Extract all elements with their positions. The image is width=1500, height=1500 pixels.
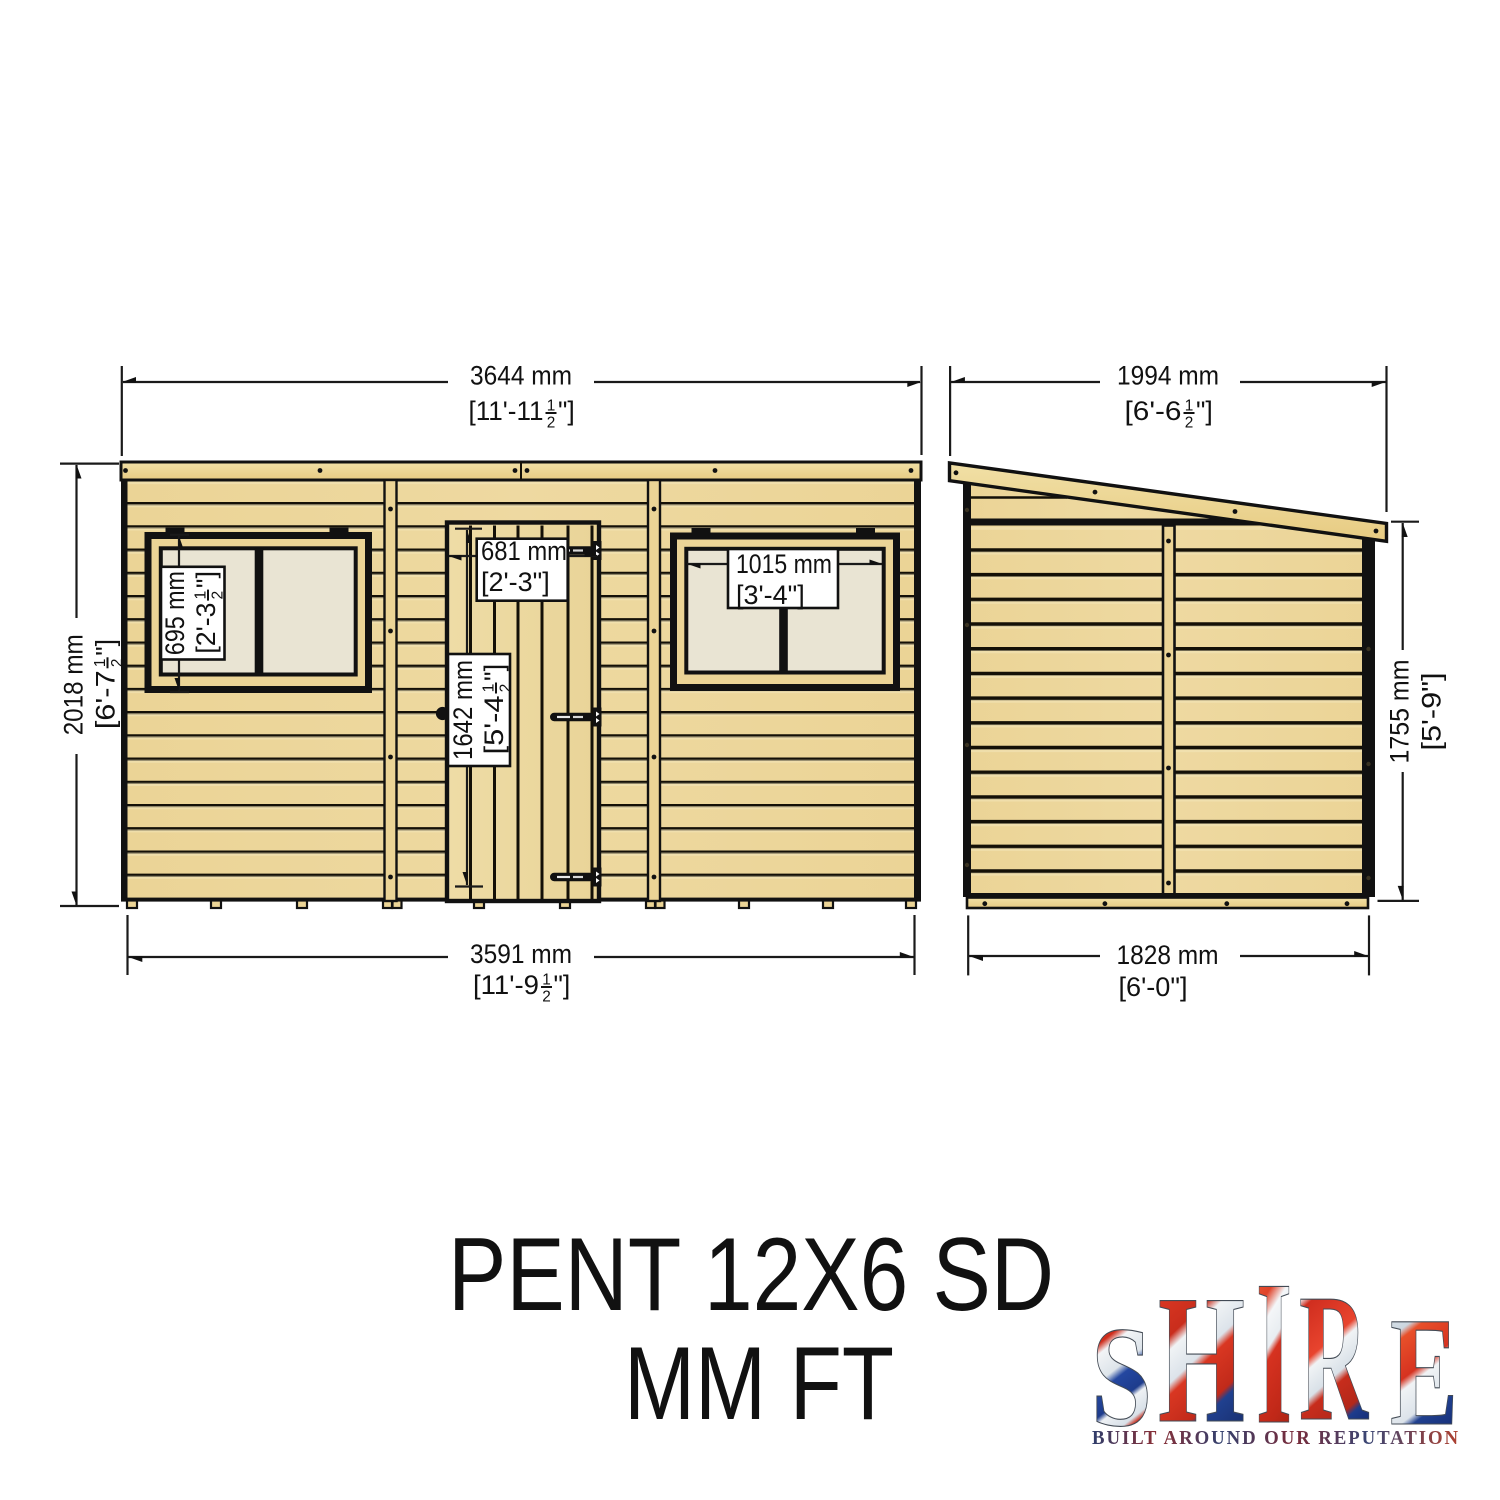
svg-text:[3'-4"]: [3'-4"]: [736, 580, 805, 610]
svg-text:1755 mm: 1755 mm: [1385, 660, 1415, 764]
svg-text:"]: "]: [1196, 396, 1213, 426]
svg-text:[5'-9"]: [5'-9"]: [1417, 673, 1447, 751]
svg-text:"]: "]: [479, 664, 509, 681]
svg-text:[5'-4: [5'-4: [479, 696, 509, 755]
svg-text:1: 1: [92, 659, 109, 668]
svg-text:2: 2: [109, 659, 126, 668]
svg-text:1: 1: [547, 398, 556, 415]
svg-text:MM FT: MM FT: [624, 1326, 894, 1442]
svg-text:"]: "]: [91, 639, 121, 656]
svg-text:2: 2: [542, 989, 551, 1006]
svg-text:[2'-3"]: [2'-3"]: [481, 567, 550, 597]
svg-text:695 mm: 695 mm: [160, 571, 190, 655]
svg-text:PENT 12X6 SD: PENT 12X6 SD: [448, 1217, 1054, 1333]
svg-text:1: 1: [1185, 398, 1194, 415]
svg-text:"]: "]: [554, 970, 571, 1000]
svg-text:"]: "]: [191, 571, 221, 588]
svg-text:1642 mm: 1642 mm: [448, 660, 478, 760]
svg-text:3591 mm: 3591 mm: [470, 939, 572, 969]
svg-text:1: 1: [542, 972, 551, 989]
svg-text:1015 mm: 1015 mm: [736, 549, 832, 579]
svg-text:2: 2: [547, 415, 556, 432]
svg-text:3644 mm: 3644 mm: [470, 361, 572, 391]
svg-text:"]: "]: [558, 396, 575, 426]
svg-text:BUILT AROUND OUR REPUTATION: BUILT AROUND OUR REPUTATION: [1092, 1428, 1460, 1449]
svg-text:[11'-11: [11'-11: [469, 396, 544, 426]
svg-text:[6'-7: [6'-7: [91, 670, 121, 729]
svg-text:2: 2: [1185, 415, 1194, 432]
svg-text:1: 1: [193, 591, 210, 600]
svg-text:681 mm: 681 mm: [481, 536, 567, 566]
svg-text:2: 2: [210, 591, 227, 600]
svg-text:2: 2: [498, 684, 515, 693]
svg-text:1828 mm: 1828 mm: [1117, 940, 1219, 970]
svg-text:[6'-0"]: [6'-0"]: [1119, 972, 1188, 1002]
svg-text:1994 mm: 1994 mm: [1117, 361, 1219, 391]
svg-text:[2'-3: [2'-3: [191, 603, 221, 654]
svg-text:2018 mm: 2018 mm: [59, 634, 89, 735]
svg-text:[6'-6: [6'-6: [1125, 396, 1182, 426]
svg-text:[11'-9: [11'-9: [473, 970, 539, 1000]
svg-text:1: 1: [481, 684, 498, 693]
